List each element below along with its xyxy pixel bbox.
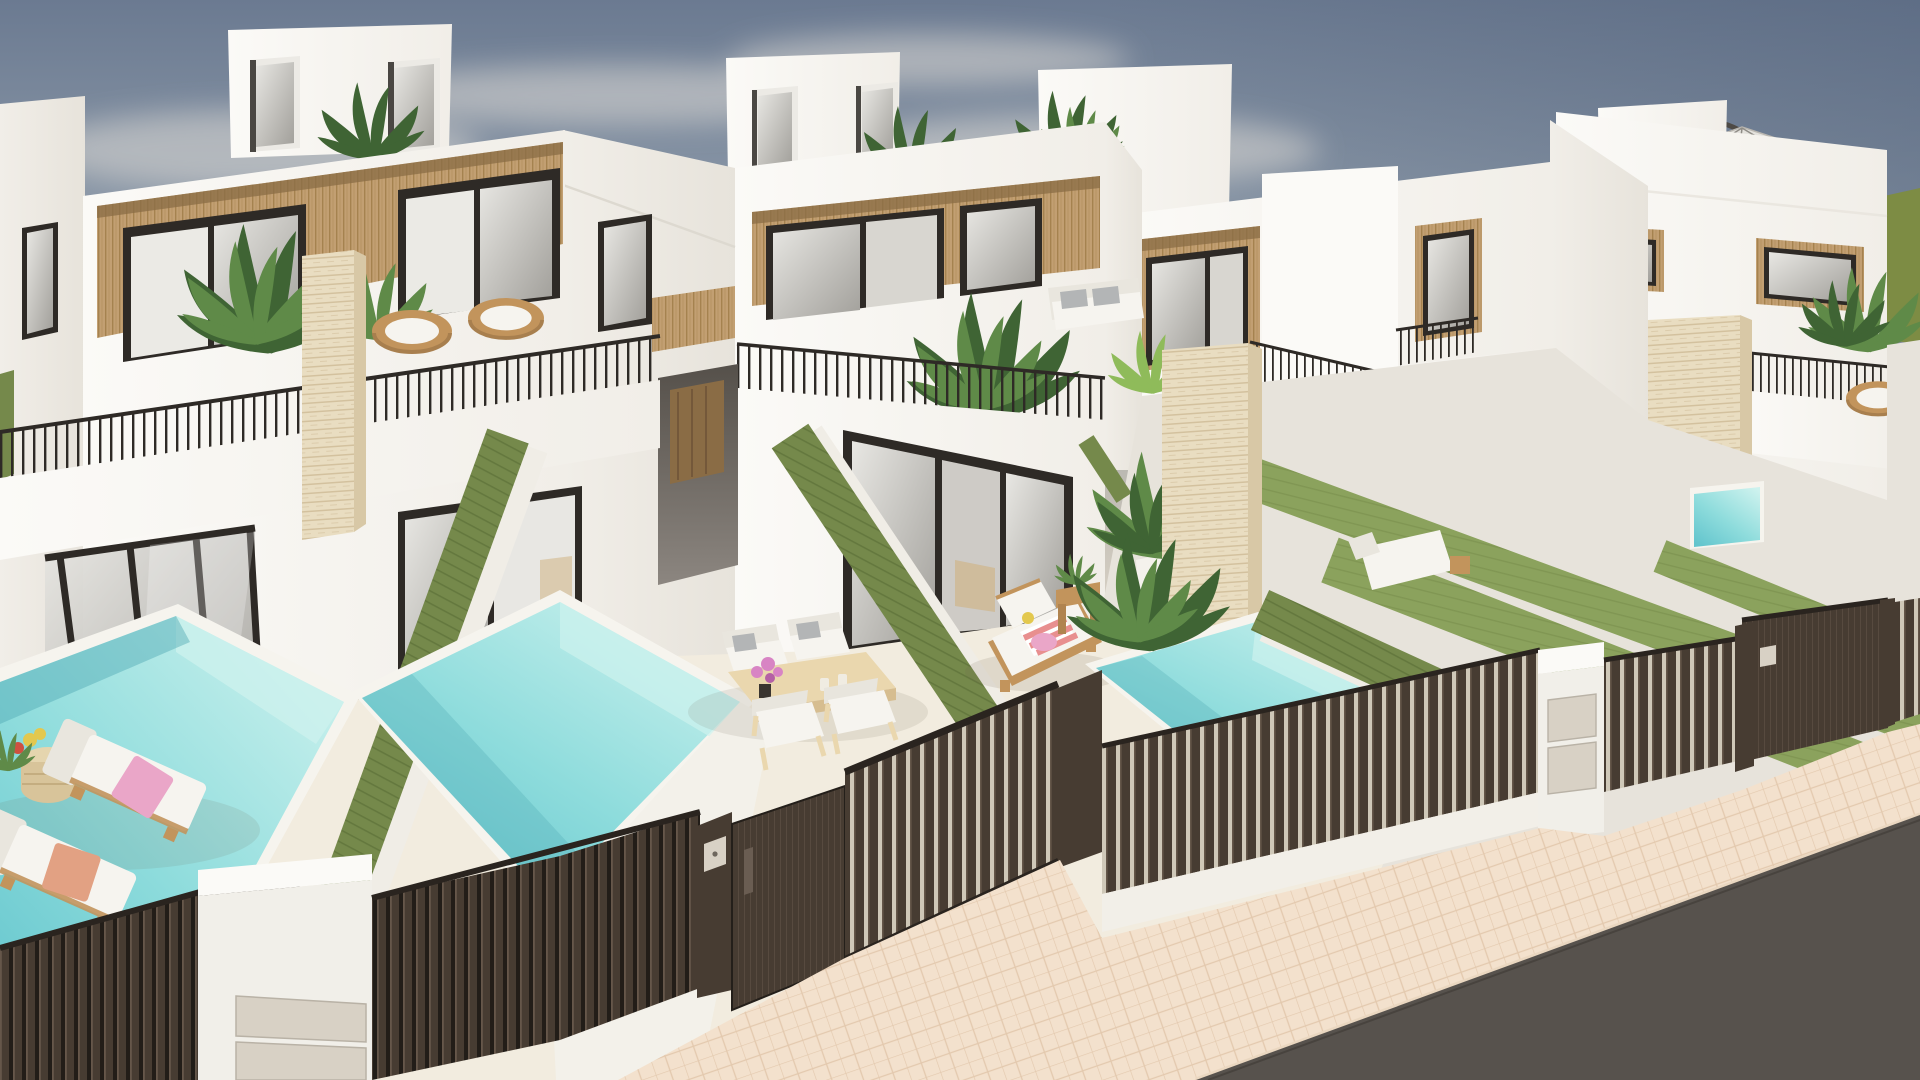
gate-keypad-right bbox=[1760, 645, 1776, 667]
gate-pillar-right bbox=[1538, 642, 1604, 840]
render-canvas bbox=[0, 0, 1920, 1080]
mailbox-panel-1 bbox=[236, 996, 366, 1042]
gate-post-right bbox=[1058, 670, 1102, 868]
rattan-chair-1 bbox=[372, 310, 452, 352]
rattan-chair-2 bbox=[468, 298, 544, 338]
rooftop-stair-box bbox=[228, 24, 452, 160]
travertine-pillar bbox=[302, 250, 354, 540]
gate-door-handle bbox=[744, 847, 753, 895]
pool-right-glimpse bbox=[1690, 481, 1764, 549]
gate-pillar-left bbox=[198, 854, 372, 1080]
keypad-post bbox=[697, 812, 732, 998]
pink-pillow bbox=[1031, 633, 1057, 651]
townhouse-render bbox=[0, 0, 1920, 1080]
mailbox-panel-2 bbox=[236, 1042, 366, 1080]
street-fence-far-right bbox=[1895, 598, 1920, 722]
